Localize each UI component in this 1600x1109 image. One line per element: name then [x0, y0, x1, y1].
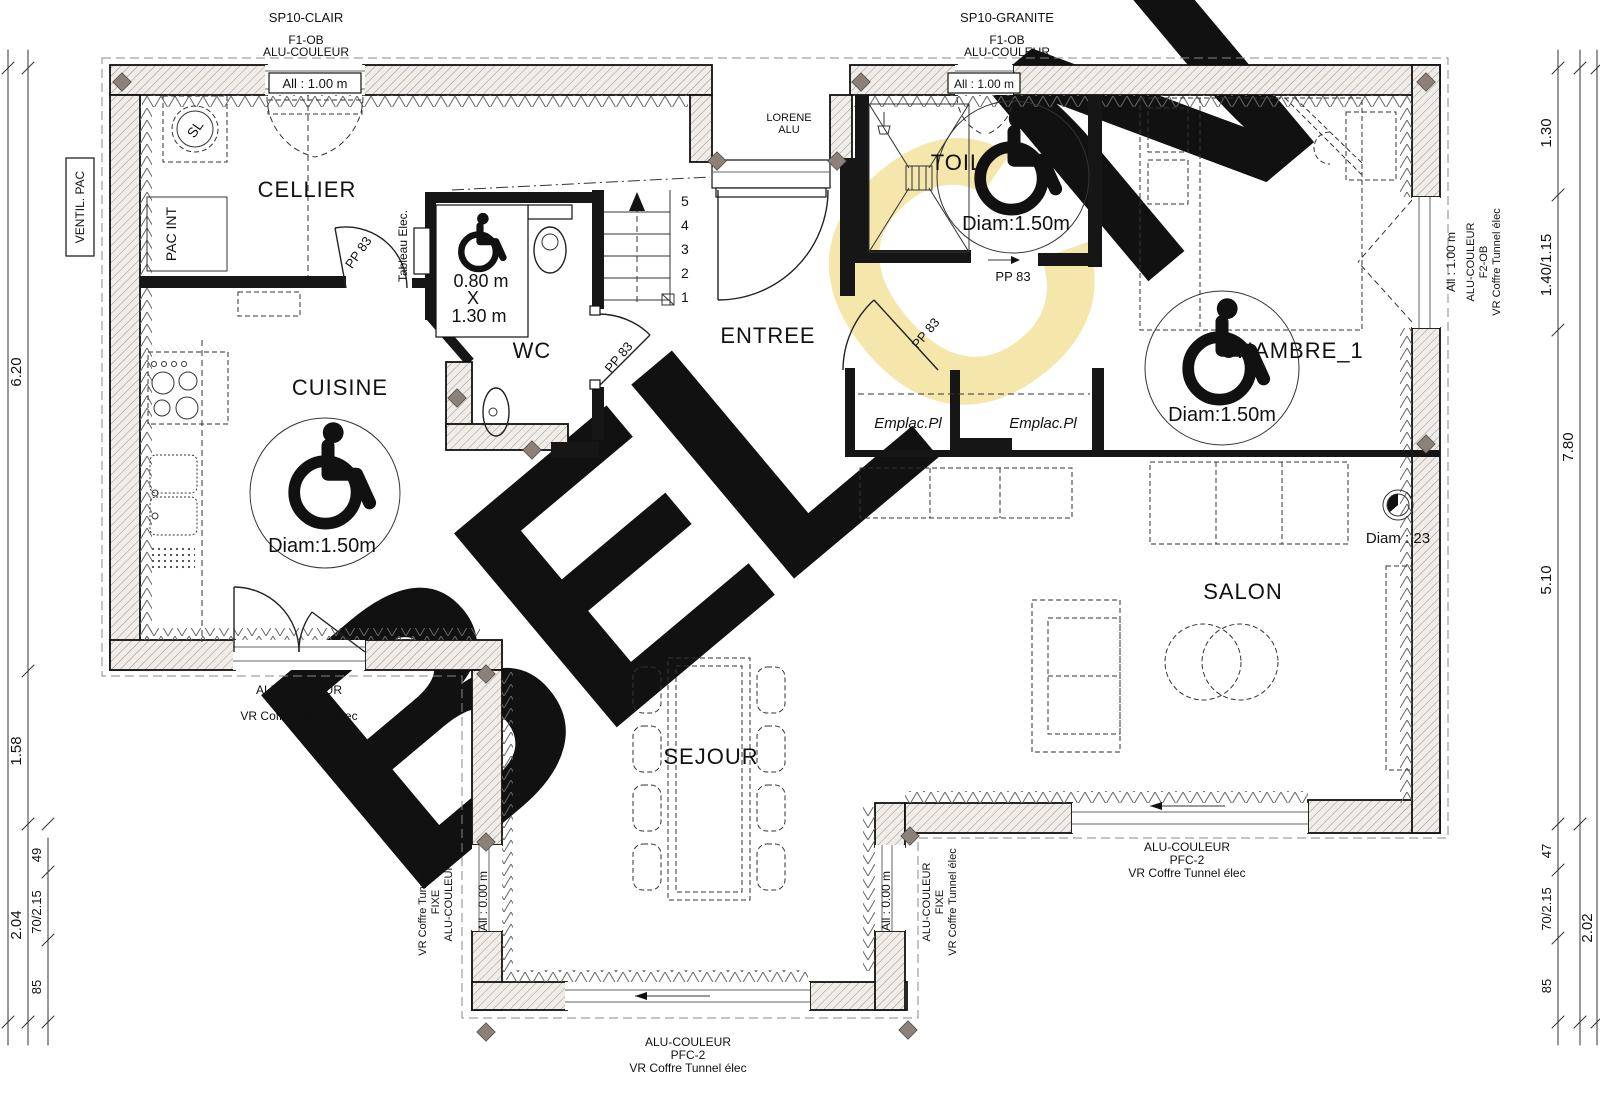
window-label: FIXE — [430, 890, 442, 914]
window-label: VR Coffre Tunnel élec — [240, 709, 357, 723]
material-left: SP10-CLAIR — [269, 10, 343, 25]
window-label: ALU-COULEUR — [1144, 840, 1230, 854]
ventil-pac-label: VENTIL. PAC — [73, 170, 87, 243]
turning-diameter: Diam:1.50m — [268, 535, 376, 557]
window-label: PF2 — [288, 696, 310, 710]
dim-140-115: 1.40/1.15 — [1538, 234, 1555, 297]
window-label: VR Coffre Tunnel élec — [947, 848, 959, 956]
room-label-wc: WC — [513, 338, 552, 363]
dim-130: 1.30 — [1538, 118, 1555, 147]
frame-color-right: ALU-COULEUR — [964, 45, 1050, 59]
stair-direction-arrow-icon — [629, 192, 645, 211]
sill-label: All : 0.00 m — [476, 871, 490, 931]
window-pfc2-right: ALU-COULEUR PFC-2 VR Coffre Tunnel élec — [1072, 802, 1308, 880]
door-label: PP 83 — [342, 234, 374, 271]
window-label: ALU-COULEUR — [256, 683, 342, 697]
window-label: ALU-COULEUR — [443, 863, 455, 942]
stair-step: 3 — [681, 241, 689, 257]
stair-step: 2 — [681, 265, 689, 281]
material-right: SP10-GRANITE — [960, 10, 1054, 25]
floorplan-drawing: BELCN — [0, 0, 1600, 1109]
frame-color-left: ALU-COULEUR — [263, 45, 349, 59]
window-label: VR Coffre Tunnel élec — [417, 848, 429, 956]
room-label-sejour: SEJOUR — [663, 744, 758, 769]
window-top-left: All : 1.00 m — [265, 65, 365, 157]
room-label-toil: TOIL — [931, 150, 984, 175]
wc-clearance-height: 1.30 m — [451, 306, 506, 326]
sill-label: All : 1.00 m — [954, 77, 1014, 91]
dim-70-215: 70/2.15 — [29, 890, 44, 933]
dim-510: 5.10 — [1538, 565, 1555, 594]
window-label: VR Coffre Tunnel élec — [629, 1061, 746, 1075]
room-label-salon: SALON — [1203, 579, 1283, 604]
entry-material: ALU — [778, 124, 799, 136]
stair-step: 1 — [681, 289, 689, 305]
turning-diameter: Diam:1.50m — [1168, 404, 1276, 426]
dim-85-right: 85 — [1539, 979, 1554, 993]
window-label: ALU-COULEUR — [645, 1035, 731, 1049]
wc-clearance-box: 0.80 m X 1.30 m — [436, 205, 528, 337]
entry-brand: LORENE — [766, 112, 811, 124]
dim-158: 1.58 — [8, 736, 25, 765]
wc-clearance-x: X — [467, 288, 479, 308]
wheelchair-icon — [294, 422, 369, 523]
tableau-elec-label: Tableau Elec. — [396, 210, 410, 282]
closet-label: Emplac.Pl — [1009, 415, 1077, 432]
door-label: PP 83 — [995, 269, 1030, 284]
dim-ticks-right — [1552, 62, 1600, 1028]
duct-label: Diam : 23 — [1366, 530, 1430, 547]
dim-49: 49 — [29, 848, 44, 862]
window-f2ob: All : 1.00 m ALU-COULEUR F2-OB VR Coffre… — [1358, 197, 1503, 328]
dim-85: 85 — [29, 980, 44, 994]
window-label: VR Coffre Tunnel élec — [1128, 866, 1245, 880]
stair-step: 5 — [681, 193, 689, 209]
dim-202: 2.02 — [1579, 913, 1596, 942]
floorplan-page: BELCN — [0, 0, 1600, 1109]
dim-620: 6.20 — [8, 357, 25, 386]
sill-label: All : 1.00 m — [282, 76, 347, 91]
sill-label: All : 0.00 m — [879, 871, 893, 931]
stair-step: 4 — [681, 217, 689, 233]
closet-label: Emplac.Pl — [874, 415, 942, 432]
wc-clearance-width: 0.80 m — [453, 271, 508, 291]
turning-diameter: Diam:1.50m — [962, 213, 1070, 235]
washer-label: SL — [184, 117, 207, 140]
window-label: F2-OB — [1478, 246, 1490, 278]
dim-204: 2.04 — [8, 910, 25, 939]
window-label: PFC-2 — [1170, 853, 1205, 867]
sill-label: All : 1.00 m — [1444, 232, 1458, 292]
dim-780: 7.80 — [1560, 432, 1577, 461]
window-label: ALU-COULEUR — [1465, 223, 1477, 302]
room-label-entree: ENTREE — [720, 323, 815, 348]
dim-47: 47 — [1539, 844, 1554, 858]
window-label: PFC-2 — [671, 1048, 706, 1062]
room-label-cuisine: CUISINE — [292, 375, 388, 400]
window-label: VR Coffre Tunnel élec — [1491, 208, 1503, 316]
room-label-cellier: CELLIER — [258, 177, 357, 202]
pac-int-label: PAC INT — [163, 206, 179, 261]
window-pfc2-bottom: ALU-COULEUR PFC-2 VR Coffre Tunnel élec — [565, 982, 810, 1075]
window-label: FIXE — [934, 890, 946, 914]
room-label-chambre: CHAMBRE_1 — [1220, 338, 1363, 363]
dim-70-215-right: 70/2.15 — [1539, 887, 1554, 930]
window-label: ALU-COULEUR — [921, 863, 933, 942]
